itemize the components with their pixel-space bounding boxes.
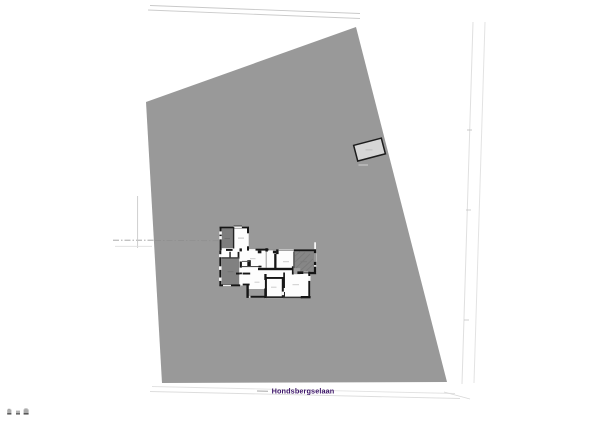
svg-text:Hondsbergselaan: Hondsbergselaan (272, 386, 335, 395)
